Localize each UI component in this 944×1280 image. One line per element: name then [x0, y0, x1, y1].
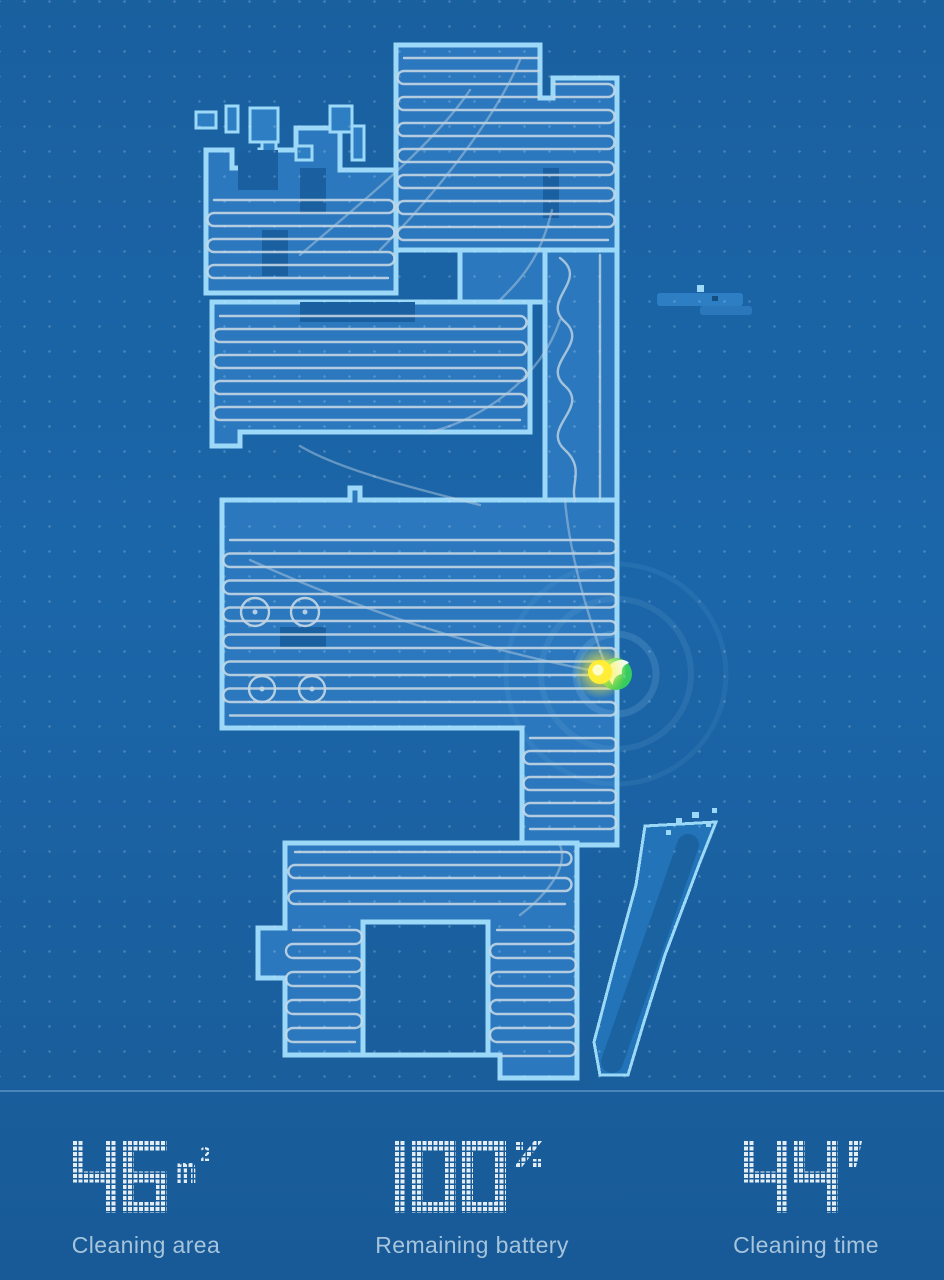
stat-label: Cleaning area [72, 1232, 220, 1259]
stat-remaining-battery: Remaining battery [356, 1141, 588, 1259]
stat-value-remaining-battery [395, 1141, 550, 1215]
charger-marker [573, 645, 627, 699]
cleaning-map[interactable] [0, 0, 944, 1090]
stat-label: Cleaning time [733, 1232, 879, 1259]
stat-value-cleaning-time [744, 1141, 868, 1215]
stat-value-cleaning-area: m2 [73, 1141, 219, 1215]
svg-text:m: m [175, 1151, 197, 1192]
stat-cleaning-area: m2 Cleaning area [30, 1141, 262, 1259]
map-canvas [0, 0, 944, 1090]
stat-label: Remaining battery [375, 1232, 568, 1259]
stats-bar: m2 Cleaning area Remaining battery Clean… [0, 1090, 944, 1280]
stat-cleaning-time: Cleaning time [690, 1141, 922, 1259]
svg-text:2: 2 [200, 1144, 211, 1166]
debris-streak [594, 808, 717, 1075]
